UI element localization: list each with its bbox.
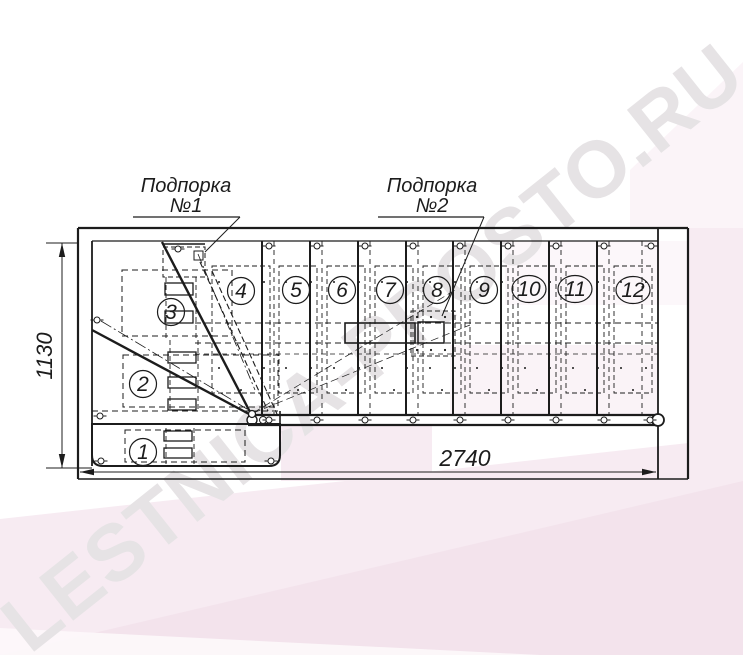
bolt-icon [362,417,368,423]
bolt-icon [410,243,416,249]
screw-dot-icon [416,316,418,318]
screw-dot-icon [597,281,599,283]
step-number: 10 [517,278,541,301]
screw-dot-icon [416,349,418,351]
bolt-icon [314,243,320,249]
screw-dot-icon [430,316,432,318]
bolt-icon [457,417,463,423]
screw-dot-icon [310,367,312,369]
support1-label-line2: №1 [170,195,203,217]
screw-dot-icon [358,281,360,283]
bolt-icon [457,243,463,249]
screw-dot-icon [297,389,299,391]
screw-dot-icon [444,316,446,318]
screw-dot-icon [263,281,265,283]
bolt-icon [175,246,181,252]
screw-dot-icon [501,281,503,283]
screw-dot-icon [632,389,634,391]
bolt-icon [97,413,103,419]
screw-dot-icon [333,367,335,369]
screw-dot-icon [488,389,490,391]
step-number: 9 [478,279,490,302]
screw-dot-icon [406,367,408,369]
step-number: 7 [384,279,397,302]
bolt-icon [362,243,368,249]
screw-dot-icon [549,281,551,283]
screw-dot-icon [549,367,551,369]
pink-facet [688,228,743,481]
screw-dot-icon [441,389,443,391]
bolt-icon [410,417,416,423]
staircase-plan-page: LESTNICA-PROSTO.RU [0,0,743,655]
staircase-plan-drawing: LESTNICA-PROSTO.RU [0,0,743,655]
step-number: 11 [564,278,586,301]
screw-dot-icon [536,389,538,391]
screw-dot-icon [430,349,432,351]
screw-dot-icon [358,367,360,369]
step-number: 5 [290,279,302,302]
screw-dot-icon [572,367,574,369]
screw-dot-icon [218,281,220,283]
bolt-icon [601,243,607,249]
bolt-icon [647,417,653,423]
screw-dot-icon [597,367,599,369]
step-number: 8 [431,279,443,302]
bolt-icon [266,243,272,249]
bolt-icon [553,417,559,423]
screw-dot-icon [645,367,647,369]
step-number: 12 [621,279,645,302]
step-number: 4 [235,280,247,303]
dimension-height-value: 1130 [32,332,57,380]
screw-dot-icon [429,367,431,369]
step-number: 3 [165,301,177,324]
background-watermark: LESTNICA-PROSTO.RU [0,0,743,655]
bolt-icon [601,417,607,423]
bolt-icon [553,243,559,249]
screw-dot-icon [406,281,408,283]
screw-dot-icon [240,389,242,391]
screw-dot-icon [333,281,335,283]
pink-facet [450,345,658,415]
screw-dot-icon [620,367,622,369]
screw-dot-icon [345,389,347,391]
bolt-icon [505,243,511,249]
screw-dot-icon [218,367,220,369]
support1-label-line1: Подпорка [141,175,232,197]
screw-dot-icon [263,367,265,369]
dimension-length-value: 2740 [438,445,490,471]
screw-dot-icon [501,367,503,369]
screw-dot-icon [454,367,456,369]
center-post-bolt-icon [249,411,256,418]
bolt-icon [314,417,320,423]
bolt-icon [268,458,274,464]
screw-dot-icon [381,281,383,283]
screw-dot-icon [310,281,312,283]
bolt-icon [648,243,654,249]
bolt-icon [94,317,100,323]
support2-label-line2: №2 [416,195,449,217]
bolt-icon [98,458,104,464]
screw-dot-icon [393,389,395,391]
screw-dot-icon [285,367,287,369]
step-number: 6 [336,279,348,302]
support2-label-line1: Подпорка [387,175,478,197]
screw-dot-icon [584,389,586,391]
screw-dot-icon [381,367,383,369]
screw-dot-icon [476,367,478,369]
step-number: 1 [137,441,149,464]
bolt-icon [505,417,511,423]
bolt-icon [266,417,272,423]
screw-dot-icon [444,349,446,351]
screw-dot-icon [524,367,526,369]
step-number: 2 [136,373,149,396]
